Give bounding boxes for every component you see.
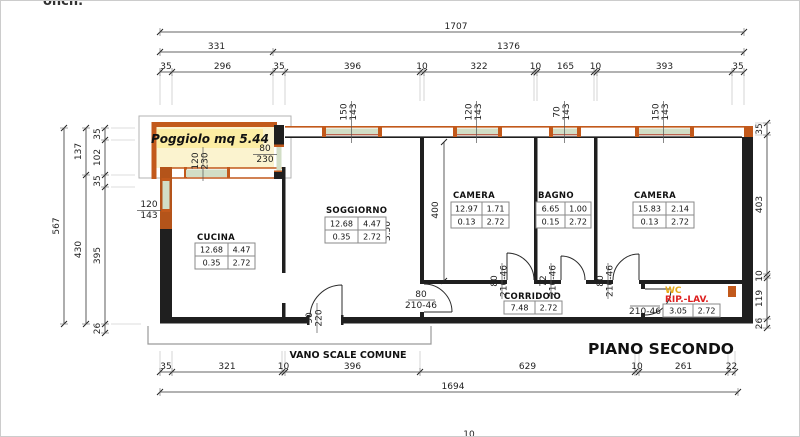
- table-value: 0.35: [203, 259, 221, 268]
- opening-label: 210-46: [629, 307, 661, 317]
- dim-label: 10: [416, 62, 428, 72]
- wc-left-wall: [641, 284, 645, 289]
- table-value: 4.47: [363, 220, 381, 229]
- dim-label: 403: [755, 196, 765, 213]
- opening-label: 90: [305, 312, 315, 324]
- opening-label: 210-46: [549, 265, 559, 297]
- opening-label: 143: [474, 103, 484, 120]
- table-value: 0.35: [333, 233, 351, 242]
- table-value: 2.72: [569, 218, 587, 227]
- balcony-side-door-glass: [277, 147, 282, 171]
- opening-label: 143: [140, 211, 157, 221]
- bagno-camera2-wall: [594, 138, 598, 280]
- cucina-left-wall: [160, 167, 172, 324]
- dim-label: 396: [344, 62, 361, 72]
- dim-label: 10: [755, 270, 765, 282]
- table-value: 3.05: [669, 307, 687, 316]
- table-value: 12.68: [200, 246, 223, 255]
- table-value: 12.68: [330, 220, 353, 229]
- dim-label: 35: [160, 62, 171, 72]
- table-value: 15.83: [638, 205, 661, 214]
- dim-label: 22: [726, 362, 737, 372]
- table-value: 2.72: [363, 233, 381, 242]
- left-window-glass: [163, 181, 170, 209]
- cucina-top-wall: [160, 167, 285, 179]
- room-label-camera2: CAMERA: [634, 191, 676, 201]
- camera1-door: [507, 253, 534, 280]
- dim-label: 321: [218, 362, 235, 372]
- floorplan-canvas: onch. Poggiolo mq 5.44: [0, 0, 800, 437]
- opening-label: 70: [553, 106, 563, 118]
- dim-label: 629: [519, 362, 536, 372]
- table-value: 2.14: [671, 205, 689, 214]
- opening-label: 120: [465, 103, 475, 120]
- table-value: 6.65: [542, 205, 560, 214]
- opening-label: 210-46: [405, 301, 437, 311]
- balcony-door-glass: [186, 170, 227, 178]
- opening-label: 72: [539, 275, 549, 286]
- room-label-soggiorno: SOGGIORNO: [326, 206, 387, 216]
- opening-label: 143: [562, 103, 572, 120]
- dim-label: 331: [208, 42, 225, 52]
- dim-label: 10: [530, 62, 542, 72]
- table-value: 2.72: [540, 304, 558, 313]
- dim-label: 35: [160, 362, 171, 372]
- room-label-cucina: CUCINA: [197, 233, 235, 243]
- dim-label: 35: [755, 123, 765, 134]
- table-value: 2.72: [487, 218, 505, 227]
- dim-label: 261: [675, 362, 692, 372]
- dim-label: 400: [431, 201, 441, 218]
- dim-label: 1376: [497, 42, 520, 52]
- table-value: 0.13: [641, 218, 659, 227]
- dim-label: 567: [52, 217, 62, 234]
- opening-label: 80: [490, 275, 500, 287]
- stairwell-outline: [148, 326, 431, 344]
- dim-label: 165: [557, 62, 574, 72]
- cucina-soggiorno-wall: [282, 167, 286, 273]
- soggiorno-right-wall: [420, 138, 424, 284]
- floor-title: PIANO SECONDO: [588, 340, 734, 358]
- dim-label: 10: [631, 362, 643, 372]
- opening-label: 80: [415, 290, 427, 300]
- room-label-camera1: CAMERA: [453, 191, 495, 201]
- room-tables: 12.680.354.472.7212.680.354.472.7212.970…: [195, 202, 720, 317]
- opening-label: 120: [191, 152, 201, 169]
- dim-label: 102: [93, 149, 103, 166]
- opening-label: 150: [652, 103, 662, 120]
- opening-label: 210-46: [500, 265, 510, 297]
- floorplan-drawing: onch. Poggiolo mq 5.44: [1, 1, 800, 437]
- dim-label: 137: [74, 143, 84, 160]
- right-wall: [742, 137, 753, 324]
- opening-label: 80: [596, 275, 606, 287]
- dim-label: 35: [93, 175, 103, 186]
- dim-label: 1707: [445, 22, 468, 32]
- dim-label: 10: [278, 362, 290, 372]
- dim-label: 395: [93, 247, 103, 264]
- balcony-label: Poggiolo mq 5.44: [151, 132, 269, 146]
- bottom-wall-right: [342, 317, 753, 324]
- stairwell-title: VANO SCALE COMUNE: [289, 350, 406, 361]
- dim-label: 10: [590, 62, 602, 72]
- dim-label: 1694: [442, 382, 465, 392]
- table-value: 1.71: [487, 205, 505, 214]
- table-value: 2.72: [698, 307, 716, 316]
- opening-label: 210-46: [606, 265, 616, 297]
- dim-label: 35: [273, 62, 284, 72]
- camera-depth-dim: 400: [431, 139, 447, 284]
- bottom-wall-left: [160, 317, 309, 324]
- opening-label: 150: [340, 103, 350, 120]
- dim-label: 35: [732, 62, 743, 72]
- opening-label: 143: [349, 103, 359, 120]
- opening-label: 143: [661, 103, 671, 120]
- dim-label: 119: [755, 290, 765, 307]
- bagno-door: [561, 256, 585, 280]
- door-frame: [227, 167, 230, 179]
- dim-label: 430: [74, 241, 84, 258]
- dim-label: 26: [93, 323, 103, 335]
- dim-label: 396: [344, 362, 361, 372]
- table-value: 0.13: [458, 218, 476, 227]
- dim-label: 296: [214, 62, 231, 72]
- camera2-door: [613, 254, 639, 280]
- table-value: 0.15: [542, 218, 560, 227]
- dim-label: 26: [755, 318, 765, 330]
- opening-label: 220: [315, 309, 325, 326]
- opening-label: 230: [201, 152, 211, 169]
- wc-niche: [728, 286, 736, 297]
- table-value: 2.72: [233, 259, 251, 268]
- dim-label: 35: [93, 128, 103, 139]
- table-value: 7.48: [511, 304, 529, 313]
- clipped-heading: onch.: [43, 1, 83, 9]
- clipped-bottom-dim: 10: [463, 430, 475, 437]
- room-label-bagno: BAGNO: [538, 191, 574, 201]
- table-value: 2.72: [671, 218, 689, 227]
- opening-label: 120: [140, 200, 157, 210]
- opening-label: 80: [259, 144, 271, 154]
- opening-label: 230: [256, 155, 273, 165]
- dim-label: 322: [470, 62, 487, 72]
- table-value: 12.97: [455, 205, 478, 214]
- table-value: 4.47: [233, 246, 251, 255]
- dim-label: 393: [656, 62, 673, 72]
- table-value: 1.00: [569, 205, 587, 214]
- top-window-band: [285, 126, 753, 138]
